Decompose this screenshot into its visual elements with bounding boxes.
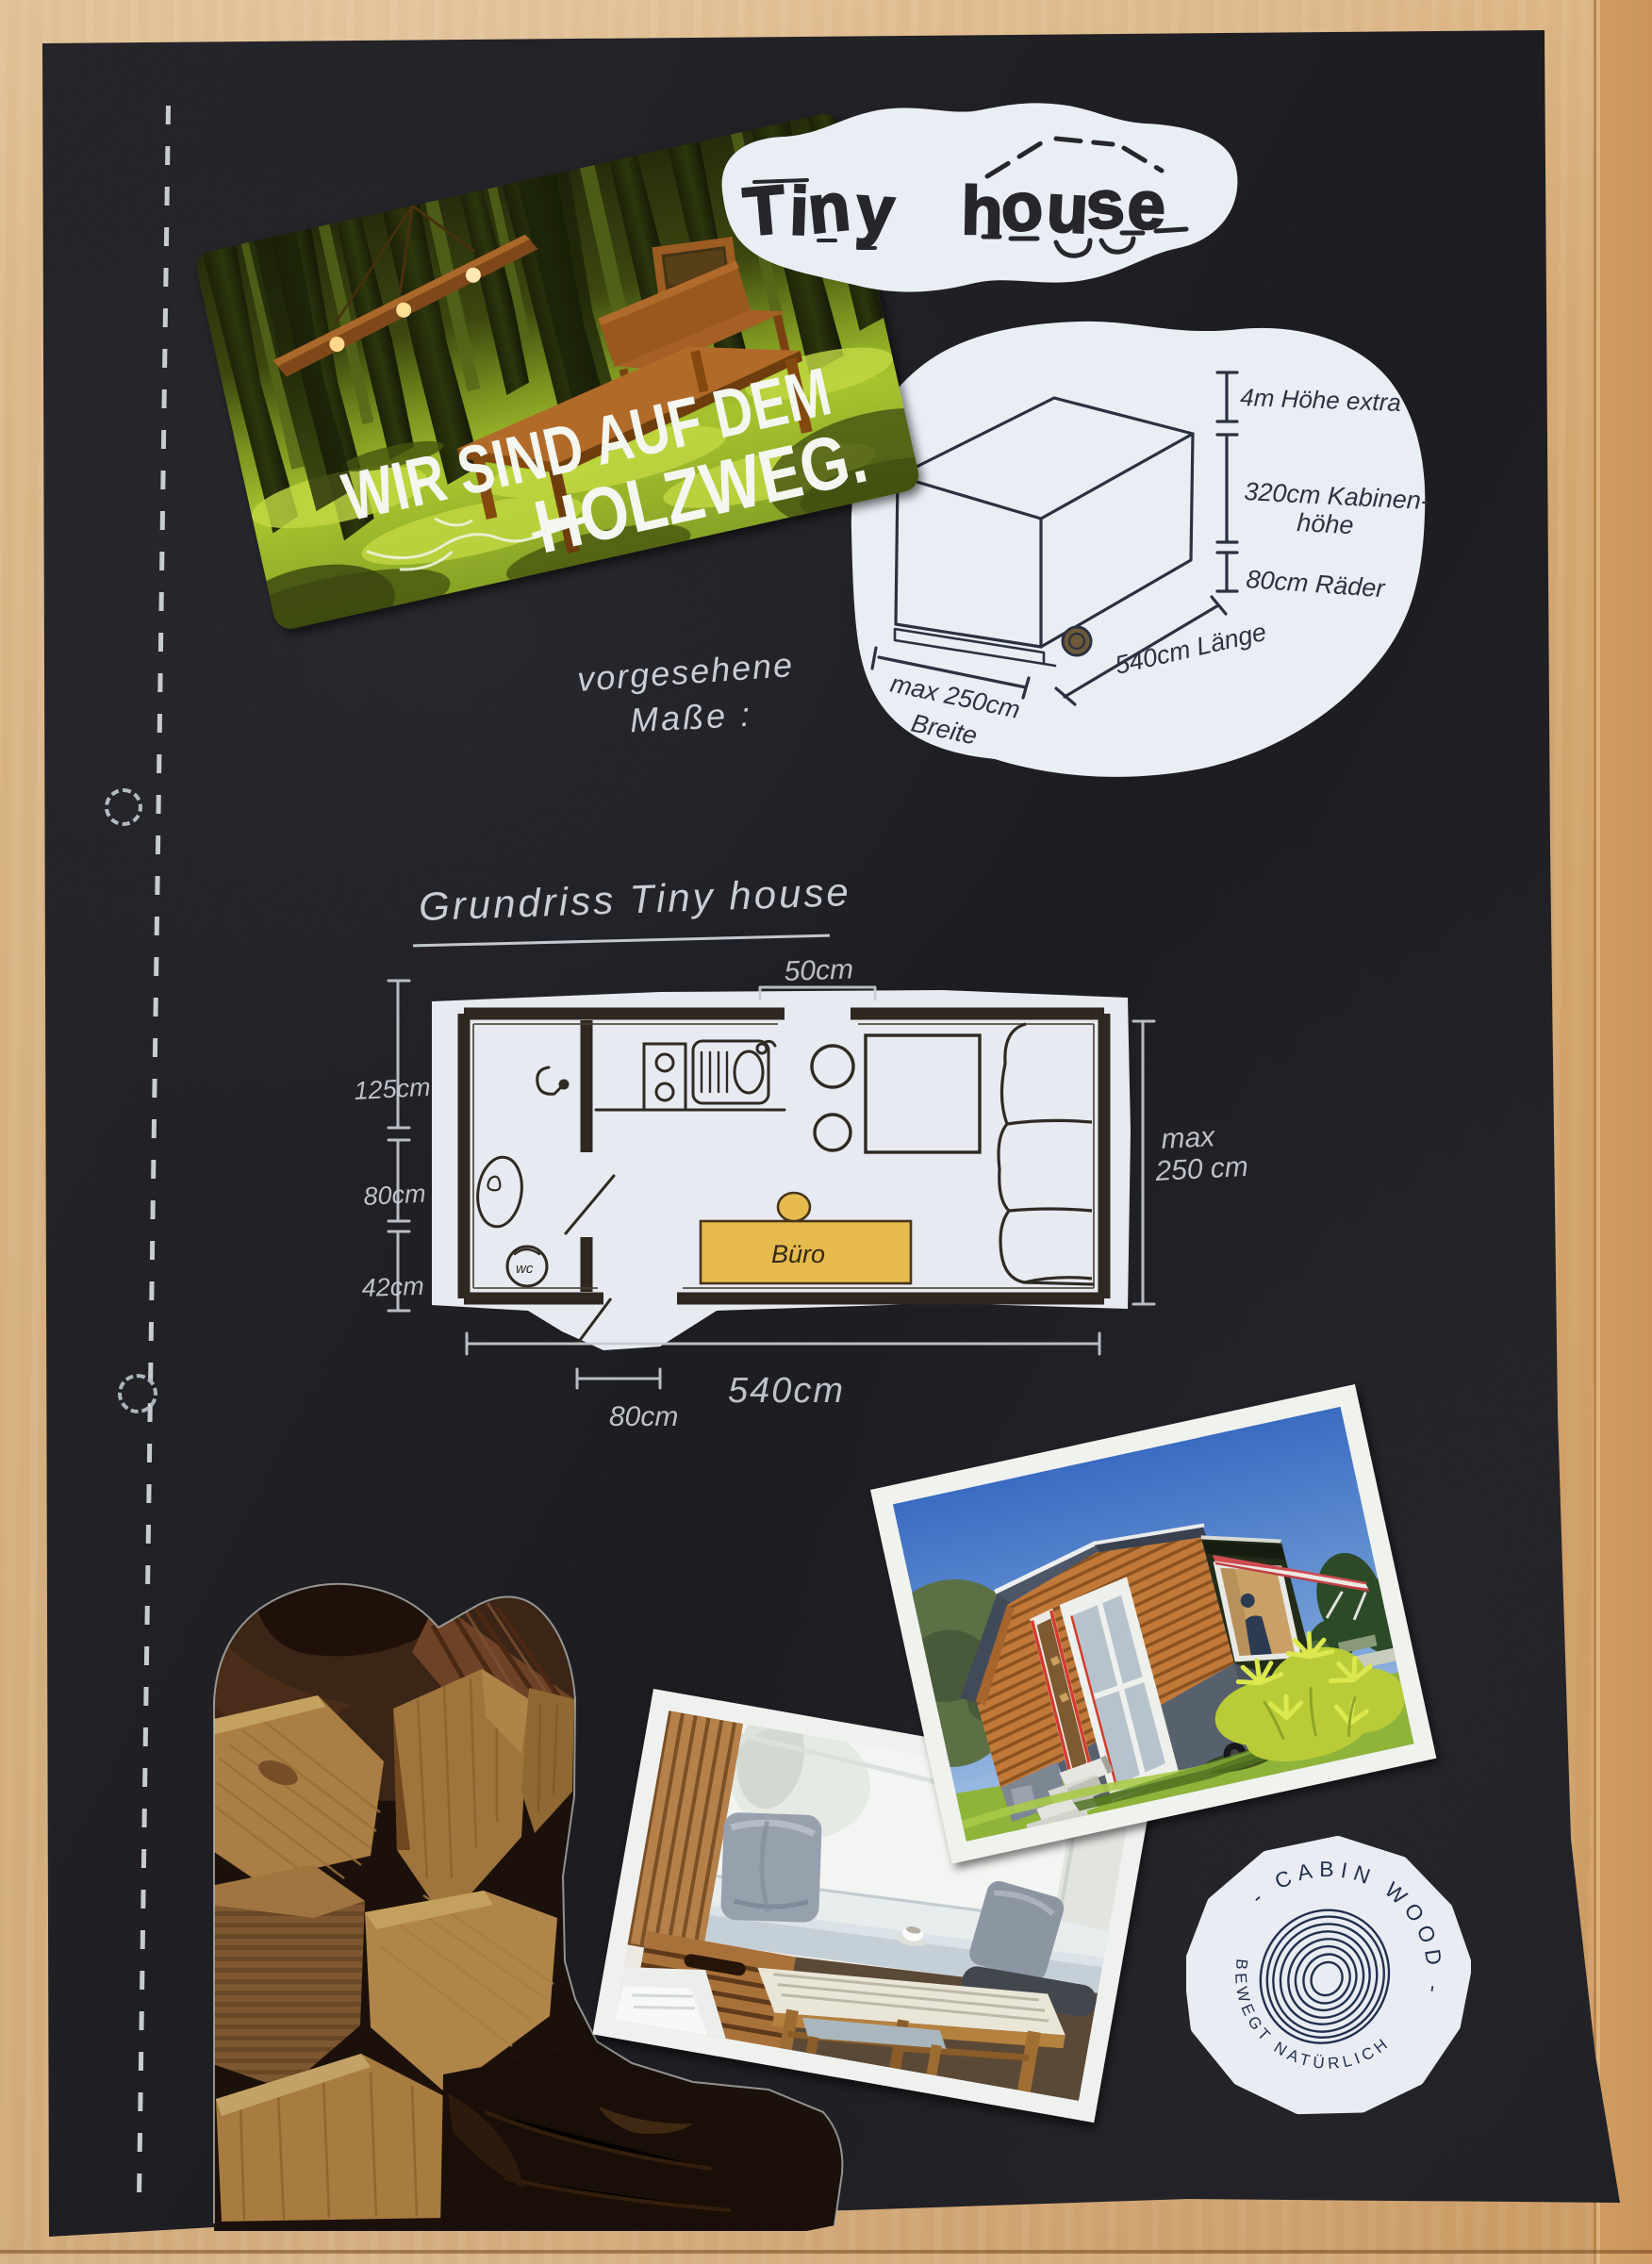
svg-text:42cm: 42cm: [361, 1272, 424, 1302]
svg-text:house: house: [958, 163, 1170, 253]
svg-text:250 cm: 250 cm: [1154, 1151, 1249, 1187]
svg-text:wc: wc: [516, 1261, 534, 1277]
svg-text:max: max: [1161, 1121, 1216, 1155]
svg-text:540cm: 540cm: [728, 1371, 845, 1411]
svg-text:Büro: Büro: [771, 1240, 825, 1268]
svg-text:125cm: 125cm: [354, 1073, 432, 1105]
svg-text:50cm: 50cm: [784, 953, 853, 987]
svg-text:4m Höhe extra: 4m Höhe extra: [1240, 383, 1401, 417]
svg-text:80cm: 80cm: [363, 1180, 427, 1211]
svg-text:80cm: 80cm: [609, 1401, 678, 1432]
svg-text:höhe: höhe: [1297, 508, 1355, 539]
